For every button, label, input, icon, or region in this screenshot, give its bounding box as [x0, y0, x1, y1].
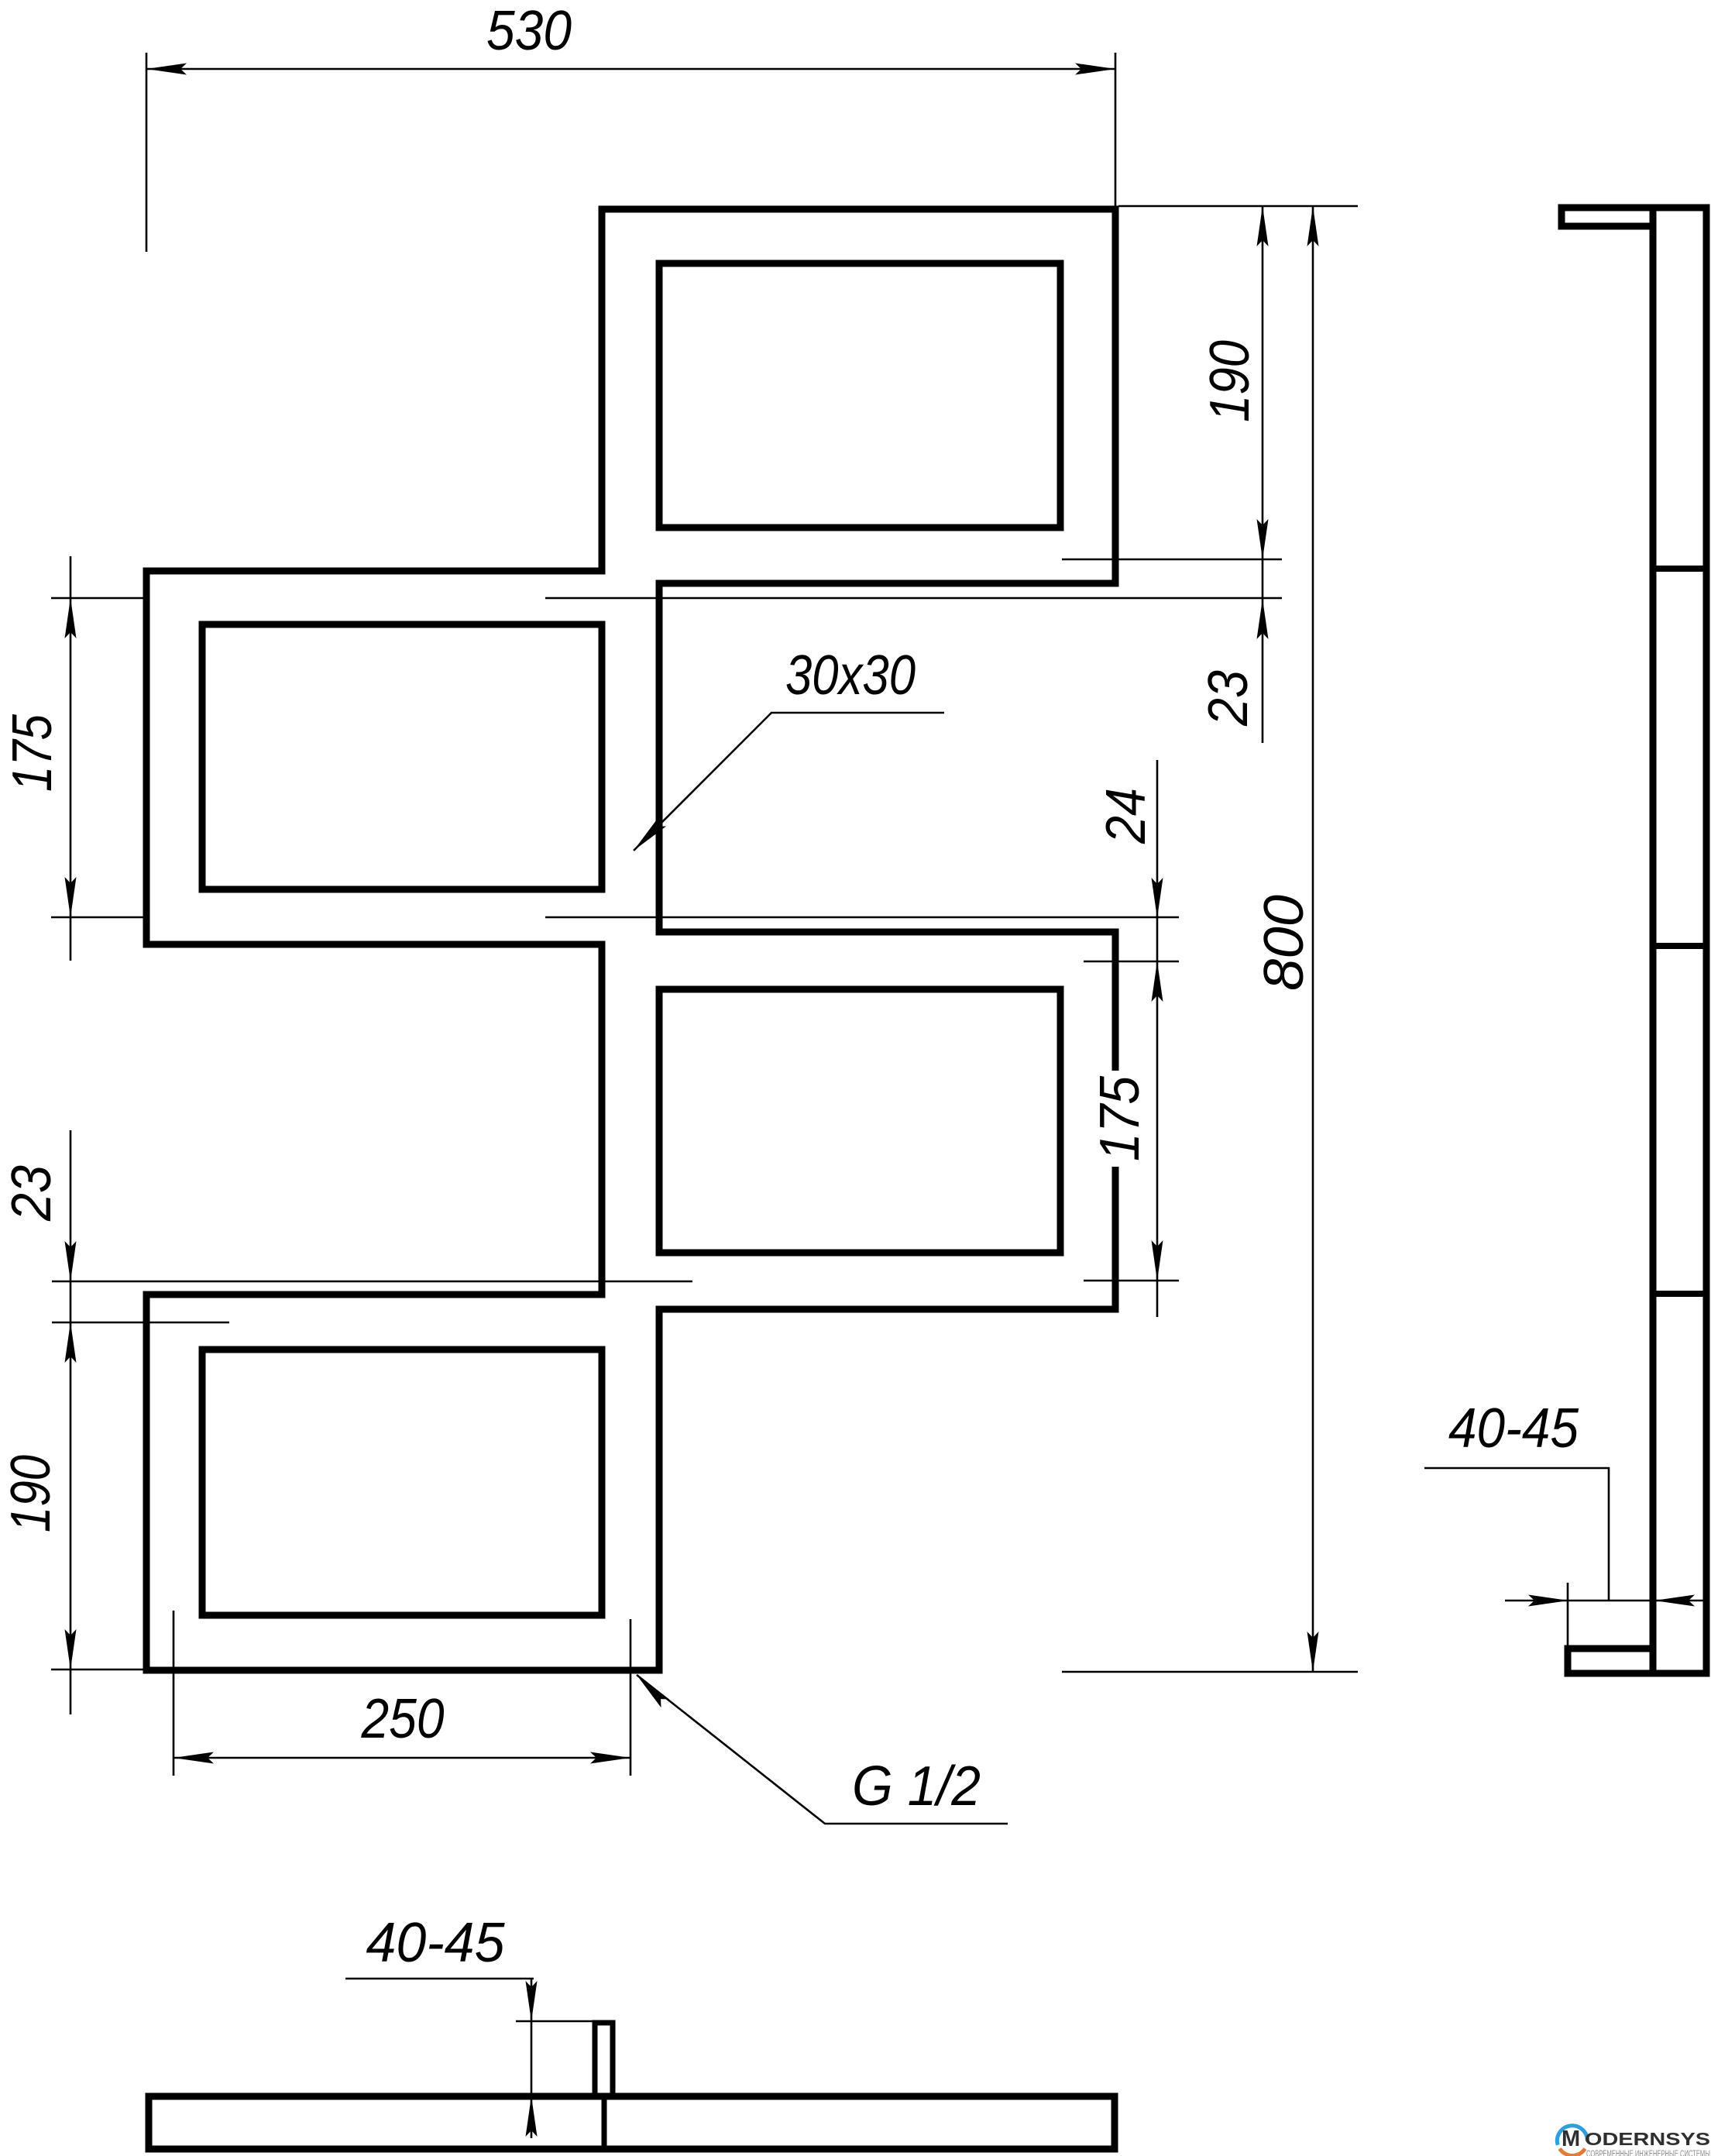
svg-text:40-45: 40-45 [366, 1912, 506, 1974]
svg-text:G 1/2: G 1/2 [852, 1755, 981, 1817]
svg-text:800: 800 [1253, 895, 1315, 991]
svg-text:190: 190 [1199, 340, 1261, 422]
svg-text:40-45: 40-45 [1448, 1398, 1579, 1460]
svg-text:ODERNSYS: ODERNSYS [1585, 2129, 1710, 2149]
svg-text:M: M [1562, 2127, 1580, 2151]
svg-text:23: 23 [1197, 670, 1259, 727]
svg-text:23: 23 [1, 1165, 63, 1222]
svg-text:30x30: 30x30 [785, 645, 916, 707]
svg-text:530: 530 [486, 0, 572, 62]
svg-text:175: 175 [1089, 1075, 1151, 1161]
svg-text:24: 24 [1095, 788, 1157, 844]
svg-text:СОВРЕМЕННЫЕ ИНЖЕНЕРНЫЕ СИСТЕМЫ: СОВРЕМЕННЫЕ ИНЖЕНЕРНЫЕ СИСТЕМЫ [1586, 2150, 1710, 2156]
svg-text:190: 190 [0, 1455, 62, 1532]
svg-text:250: 250 [361, 1688, 445, 1750]
svg-text:175: 175 [2, 714, 64, 792]
